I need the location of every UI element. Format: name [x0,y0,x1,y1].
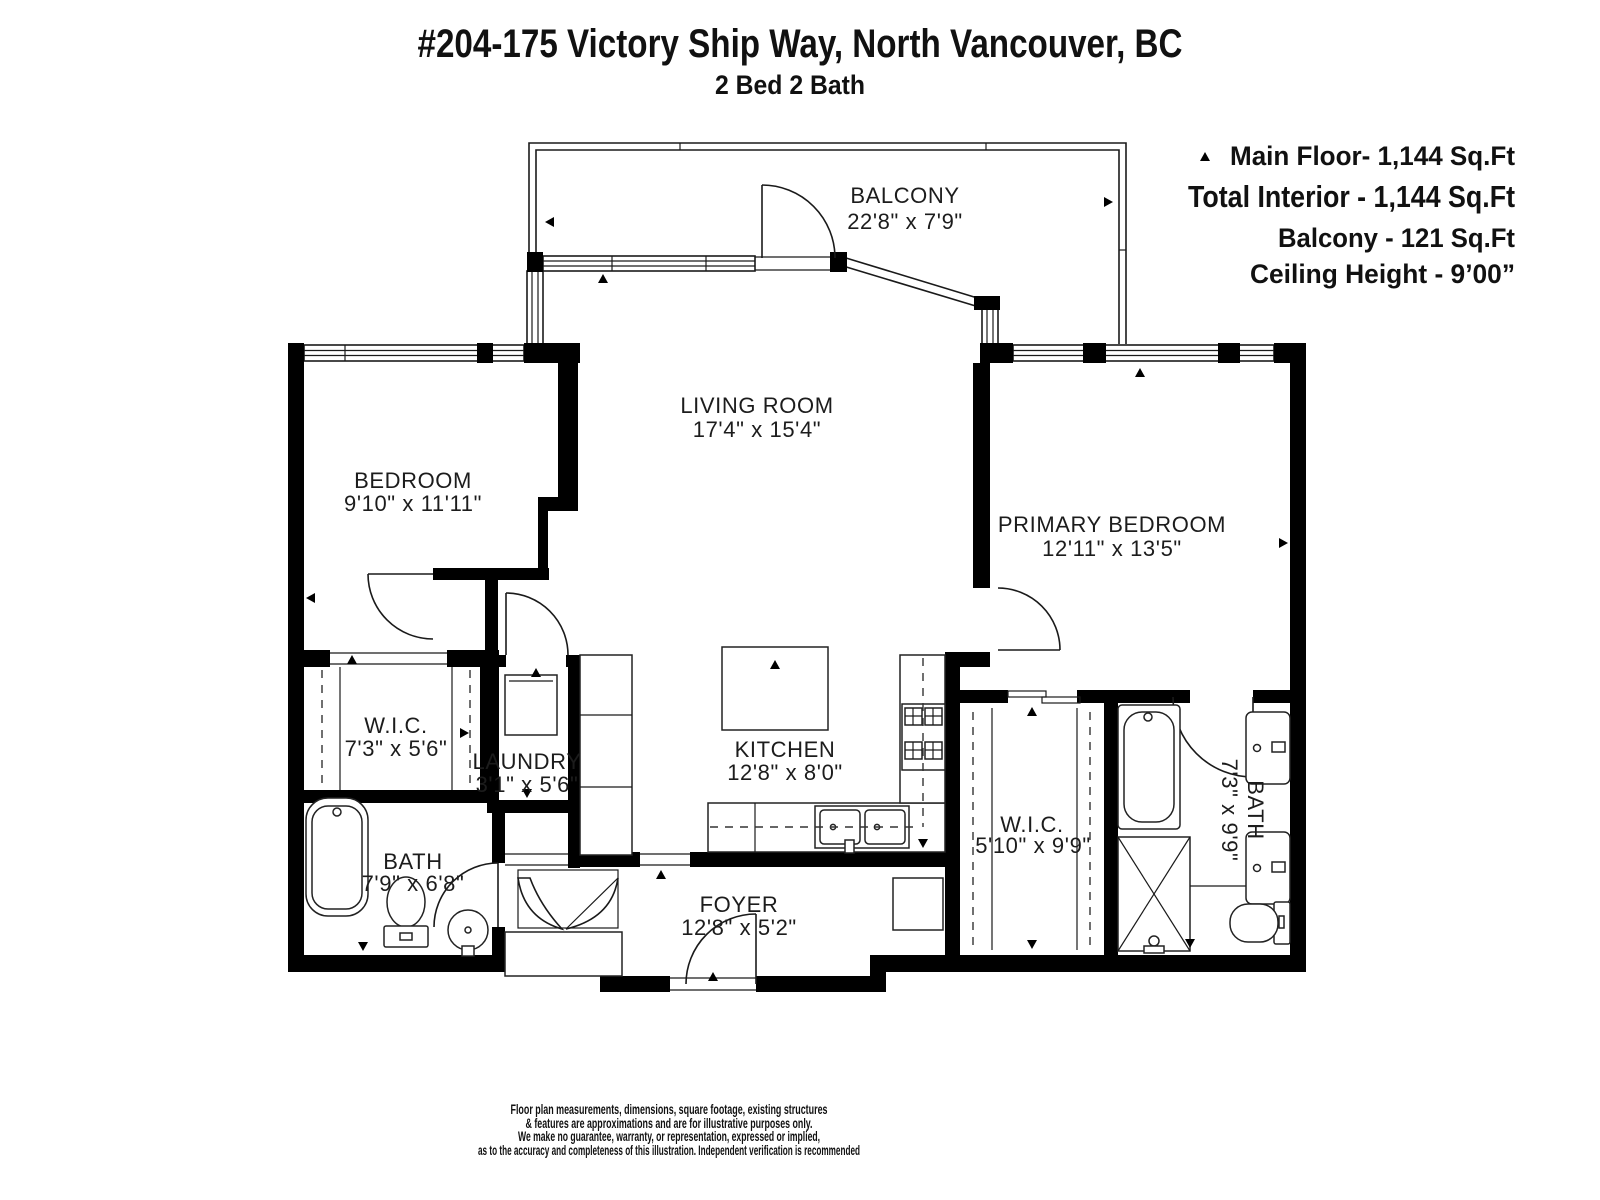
page-subtitle: 2 Bed 2 Bath [715,70,865,100]
laundry-label: LAUNDRY [473,749,582,774]
foyer-closet-bifold-doors [518,870,618,929]
kitchen-left-cabinets [580,655,632,855]
windows [304,256,1274,361]
laundry-door [506,593,568,655]
kitchen-dims: 12'8" x 8'0" [727,760,843,785]
stat-main-floor: Main Floor- 1,144 Sq.Ft [1230,141,1515,171]
kitchen-sink-icon [815,806,909,853]
balcony-label: BALCONY [850,183,959,208]
stat-balcony: Balcony - 121 Sq.Ft [1278,223,1515,253]
balcony-railing [529,143,1126,344]
balcony-door [762,185,835,258]
washer-icon [505,675,557,735]
disclaimer-line-4: as to the accuracy and completeness of t… [478,1142,860,1158]
foyer-closet-floor [505,932,622,976]
stat-total-interior: Total Interior - 1,144 Sq.Ft [1188,179,1515,214]
labels: #204-175 Victory Ship Way, North Vancouv… [344,22,1515,1158]
wic-left-dims: 7'3" x 5'6" [345,736,448,761]
shower-icon [1118,837,1190,953]
bedroom-dims: 9'10" x 11'11" [344,491,482,516]
wic-left-label: W.I.C. [364,713,428,738]
bathtub-left-icon [306,798,368,916]
kitchen-island [722,647,828,730]
bath-right-label: BATH [1243,780,1268,839]
floor-plan-page: #204-175 Victory Ship Way, North Vancouv… [0,0,1600,1200]
primary-bedroom-door [998,588,1060,650]
bedroom-door [368,574,433,639]
foyer-label: FOYER [700,892,779,917]
bath-right-dims: 7'3" x 9'9" [1217,759,1242,862]
toilet-right-icon [1230,902,1290,944]
balcony-dims: 22'8" x 7'9" [847,209,963,234]
living-room-label: LIVING ROOM [680,393,833,418]
bedroom-label: BEDROOM [354,468,472,493]
primary-bedroom-label: PRIMARY BEDROOM [998,512,1226,537]
floor-plan-canvas: #204-175 Victory Ship Way, North Vancouv… [0,0,1600,1200]
living-room-dims: 17'4" x 15'4" [693,417,821,442]
foyer-cabinet [893,878,943,930]
stat-ceiling-height: Ceiling Height - 9’00” [1250,259,1515,289]
sink-left-icon [448,910,488,956]
primary-bedroom-dims: 12'11" x 13'5" [1042,536,1182,561]
foyer-dims: 12'8" x 5'2" [681,915,797,940]
bathtub-right-icon [1118,705,1180,829]
kitchen-label: KITCHEN [735,737,836,762]
page-title: #204-175 Victory Ship Way, North Vancouv… [418,22,1183,66]
bath-left-dims: 7'9" x 6'8" [362,871,465,896]
wic-right-dims: 5'10" x 9'9" [975,833,1091,858]
laundry-dims: 3'1" x 5'6" [476,772,579,797]
